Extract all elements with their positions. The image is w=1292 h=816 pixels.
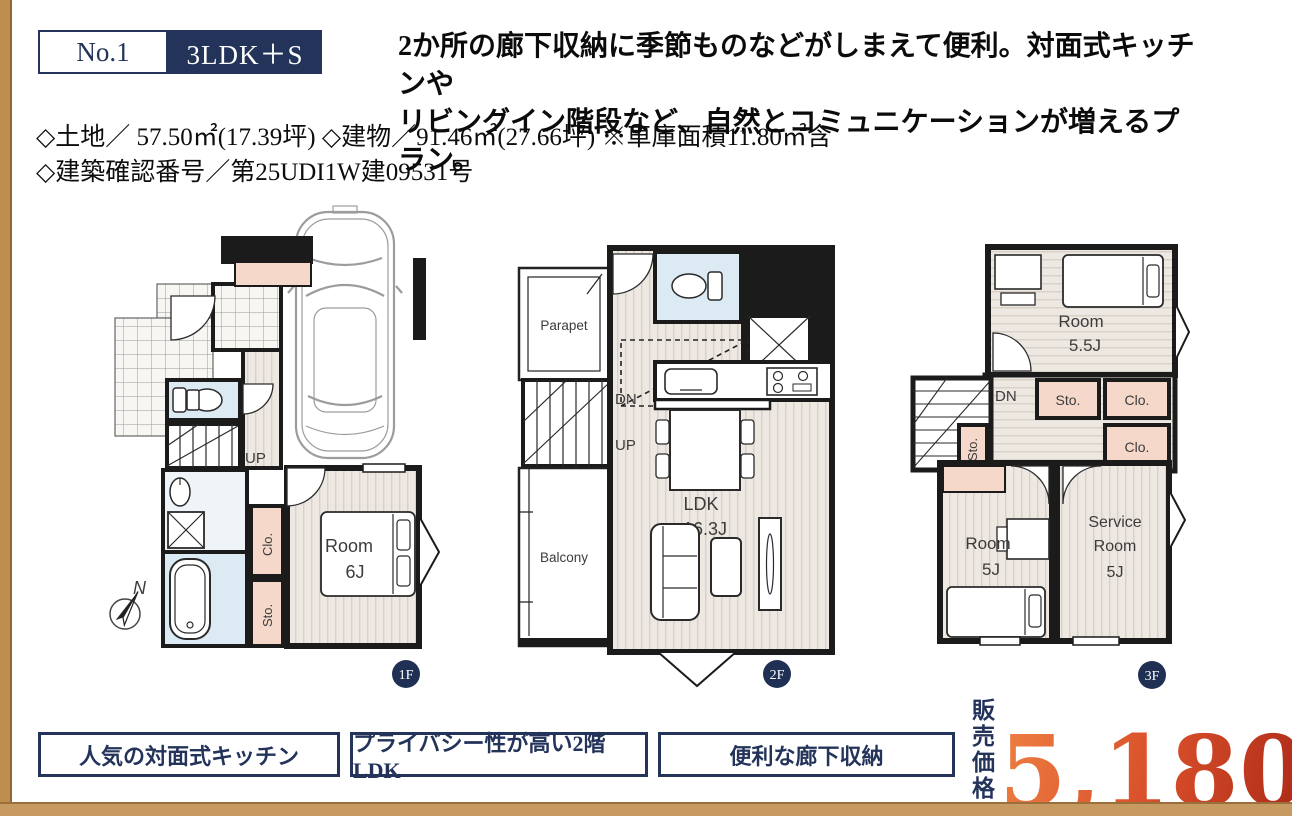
room5j-label: Room (965, 534, 1010, 553)
shoe-storage (235, 262, 311, 286)
tv-board (759, 518, 781, 610)
washroom (163, 470, 247, 552)
feature-label: 便利な廊下収納 (729, 739, 883, 771)
headline-line1: 2か所の廊下収納に季節ものなどがしまえて便利。対面式キッチンや (398, 28, 1198, 104)
closet-label: Clo. (260, 533, 275, 556)
bay-window (1175, 303, 1189, 361)
dining-table (656, 410, 754, 490)
price-block: 販売 価格 5,180 (税込) 万円 (972, 698, 1292, 812)
bay-window (419, 516, 439, 588)
property-line-area: ◇土地／ 57.50㎡(17.39坪) ◇建物／91.46㎡(27.66坪) ※… (36, 120, 832, 155)
closet-accent (943, 466, 1005, 492)
storage-2-label: Sto. (965, 438, 980, 461)
storage-label: Sto. (260, 604, 275, 627)
window (363, 464, 405, 472)
price-prefix: 販売 価格 (972, 698, 995, 802)
bottom-accent-strip (0, 802, 1292, 816)
feature-list: 人気の対面式キッチン プライバシー性が高い2階LDK 便利な廊下収納 (38, 732, 955, 777)
compass-icon: N (110, 578, 147, 629)
bed-icon (1063, 255, 1163, 307)
feature-box-kitchen: 人気の対面式キッチン (38, 732, 340, 777)
toilet-icon (173, 388, 222, 412)
floor-badge-1f-text: 1F (399, 668, 414, 683)
window-b1 (980, 637, 1020, 645)
service-room-label1: Service (1088, 514, 1141, 531)
kitchen-counter (655, 362, 832, 409)
stairs-up (167, 424, 240, 468)
floorplan-2f-svg: Parapet Balcony (505, 222, 840, 692)
floor-badge-3f-text: 3F (1145, 669, 1160, 684)
floorplan-3f: Room 5.5J DN Sto. Clo. Clo. Sto. (885, 235, 1190, 705)
price-amount: 5,180 (999, 732, 1292, 812)
compass-n-label: N (133, 578, 147, 598)
left-accent-strip (0, 0, 12, 816)
room55j-label: Room (1058, 312, 1103, 331)
up-label: UP (615, 437, 636, 454)
bay-window-2 (1169, 490, 1185, 550)
price-prefix-line2: 価格 (972, 750, 995, 802)
coffee-table (711, 538, 741, 596)
feature-box-privacy: プライバシー性が高い2階LDK (350, 732, 648, 777)
parapet-label: Parapet (540, 318, 588, 333)
dn-label: DN (615, 391, 637, 408)
flyer-page: No.1 3LDK＋S 2か所の廊下収納に季節ものなどがしまえて便利。対面式キッ… (0, 0, 1292, 816)
price-prefix-line1: 販売 (972, 698, 995, 750)
floorplan-2f: Parapet Balcony (505, 222, 840, 692)
upper-wall (221, 236, 313, 264)
closet-1-label: Clo. (1125, 392, 1150, 408)
sofa-icon (651, 524, 699, 620)
storage-1-label: Sto. (1056, 392, 1081, 408)
room6j-label: Room (325, 536, 373, 556)
entry-hall (213, 284, 281, 350)
floor-badge-1f: 1F (392, 660, 420, 688)
bay-window (658, 652, 736, 686)
plan-type-badge: 3LDK＋S (168, 30, 322, 74)
floor-badge-2f: 2F (763, 660, 791, 688)
property-line-permit: ◇建築確認番号／第25UDI1W建09531号 (36, 155, 832, 190)
up-label: UP (245, 450, 266, 467)
service-room-label2: Room (1094, 538, 1137, 555)
desk-icon (995, 255, 1041, 305)
toilet-icon (672, 272, 722, 300)
floorplan-3f-svg: Room 5.5J DN Sto. Clo. Clo. Sto. (885, 235, 1190, 705)
floorplan-1f-svg: UP Clo. Sto. (95, 200, 445, 700)
service-room-size: 5J (1107, 564, 1124, 581)
plan-badges: No.1 3LDK＋S (38, 30, 322, 74)
room55j-size: 5.5J (1069, 336, 1101, 355)
property-details: ◇土地／ 57.50㎡(17.39坪) ◇建物／91.46㎡(27.66坪) ※… (36, 120, 832, 190)
plan-number-badge: No.1 (38, 30, 168, 74)
floor-badge-2f-text: 2F (770, 668, 785, 683)
feature-label: プライバシー性が高い2階LDK (353, 726, 645, 784)
feature-label: 人気の対面式キッチン (79, 739, 299, 771)
room5j-size: 5J (982, 560, 1000, 579)
closet-2-label: Clo. (1125, 439, 1150, 455)
stairs (523, 380, 610, 466)
ldk-label: LDK (683, 494, 718, 514)
room6j-size: 6J (345, 562, 364, 582)
balcony-label: Balcony (540, 550, 588, 565)
bed-icon-5j (947, 587, 1045, 637)
boundary-wall (413, 258, 426, 340)
floor-badge-3f: 3F (1138, 661, 1166, 689)
floorplan-1f: UP Clo. Sto. (95, 200, 445, 700)
feature-box-storage: 便利な廊下収納 (658, 732, 955, 777)
dn-label: DN (995, 388, 1017, 405)
window-b2 (1073, 637, 1119, 645)
bathroom (163, 552, 247, 646)
